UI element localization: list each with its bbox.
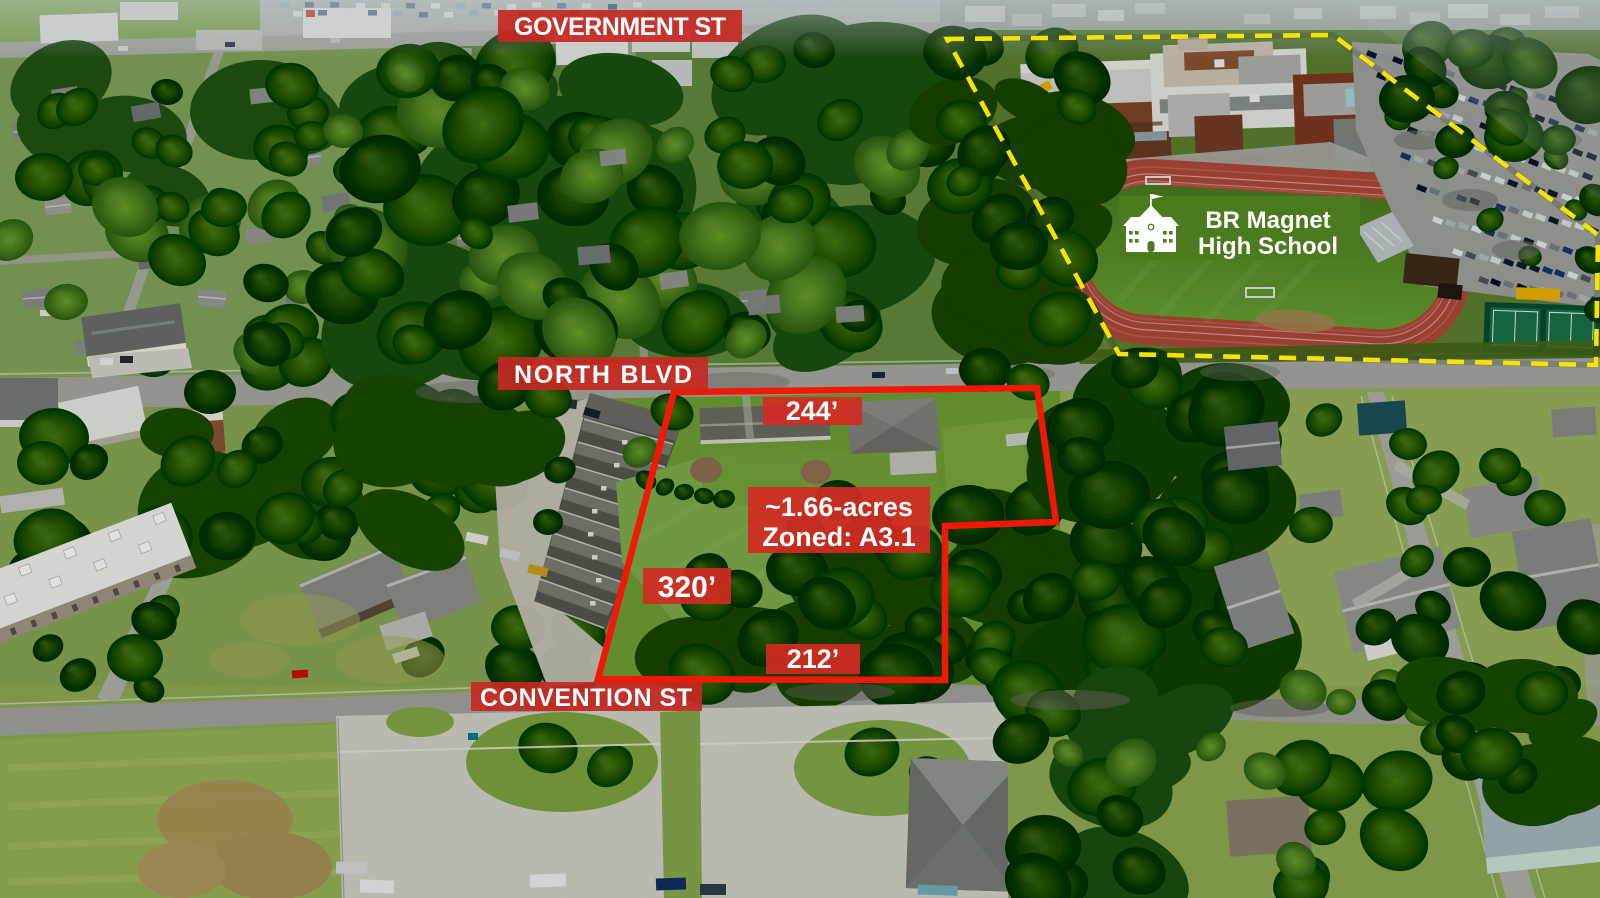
svg-text:212’: 212’ [787, 644, 840, 674]
svg-text:Zoned: A3.1: Zoned: A3.1 [762, 522, 916, 552]
svg-text:High School: High School [1198, 233, 1338, 260]
svg-text:320’: 320’ [658, 571, 716, 604]
svg-text:244’: 244’ [786, 396, 839, 426]
svg-text:GOVERNMENT ST: GOVERNMENT ST [514, 13, 726, 41]
svg-text:CONVENTION ST: CONVENTION ST [480, 684, 692, 712]
svg-text:BR Magnet: BR Magnet [1205, 207, 1330, 234]
svg-text:~1.66-acres: ~1.66-acres [765, 492, 913, 522]
svg-text:NORTH BLVD: NORTH BLVD [514, 361, 692, 389]
